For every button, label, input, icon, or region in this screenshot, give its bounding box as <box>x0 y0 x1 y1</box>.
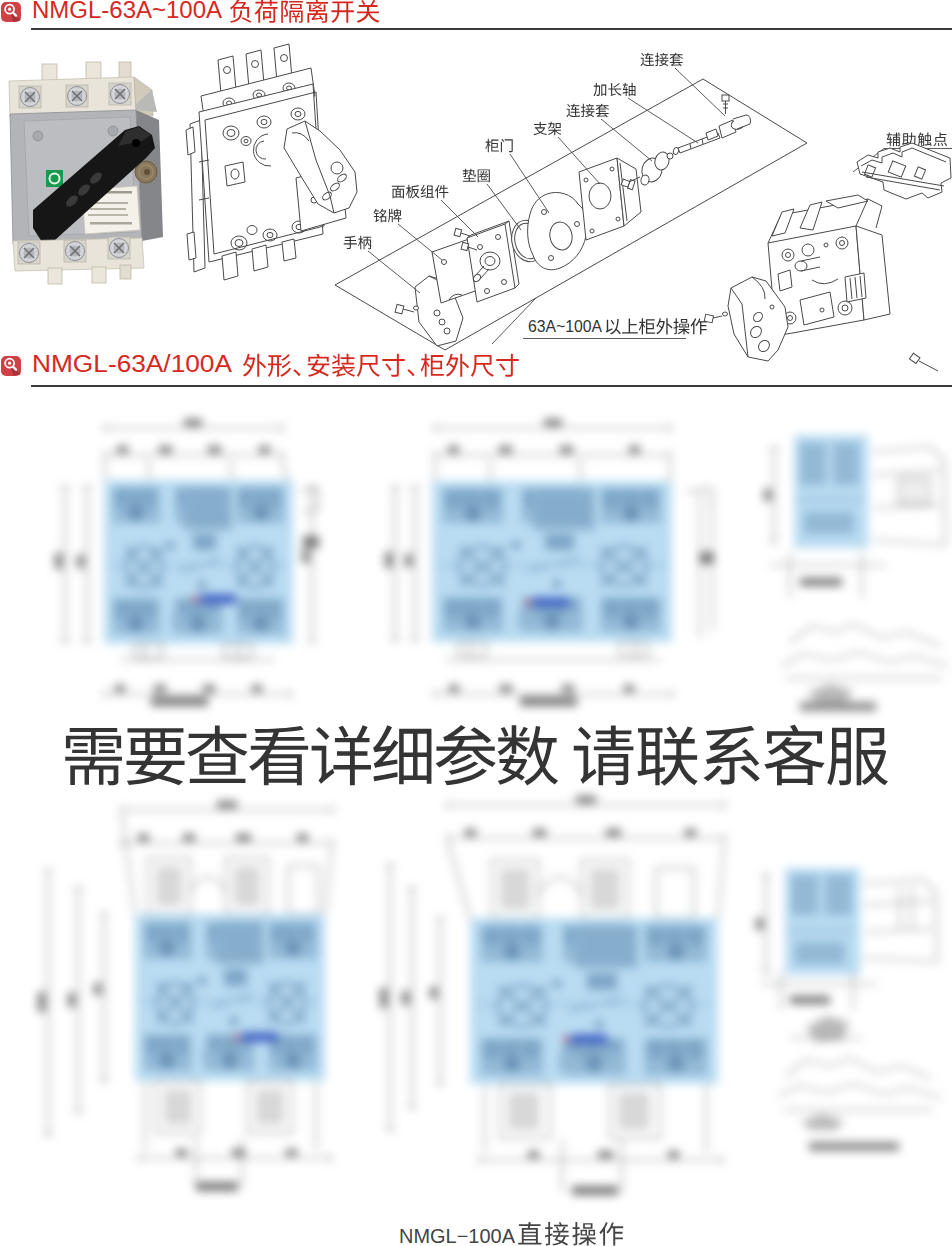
svg-text:NMGL−100A: NMGL−100A <box>399 1225 516 1246</box>
svg-text:NMGL-63A~100A: NMGL-63A~100A <box>32 0 223 23</box>
svg-text:63A~100A: 63A~100A <box>528 317 603 336</box>
svg-text:NMGL-63A/100A: NMGL-63A/100A <box>32 351 233 377</box>
